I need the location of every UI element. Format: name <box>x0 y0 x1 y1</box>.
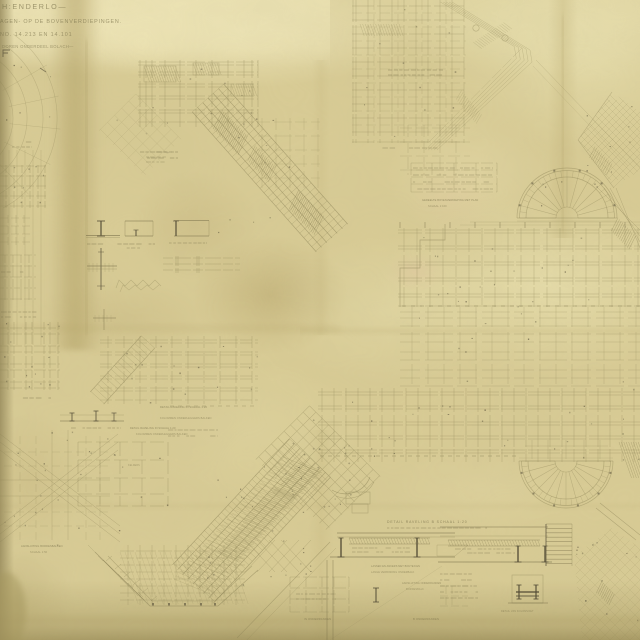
svg-text:SCHAAL 1:50: SCHAAL 1:50 <box>30 550 48 554</box>
svg-text:LASSEN EN ANKERS MET BOUTEN EN: LASSEN EN ANKERS MET BOUTEN EN <box>371 565 420 568</box>
svg-text:AANSLUITING ONDERRANDEN: AANSLUITING ONDERRANDEN <box>402 582 441 585</box>
svg-text:DETAIL RAVELING B SCHAAL 1:20: DETAIL RAVELING B SCHAAL 1:20 <box>387 520 468 524</box>
svg-text:KOLOMMEN ONDERLEGGERS BALKEN: KOLOMMEN ONDERLEGGERS BALKEN <box>160 416 212 420</box>
svg-text:BORDESBALK: BORDESBALK <box>406 588 424 591</box>
svg-text:AGEN- OP DE BOVENVERDIEPINGEN.: AGEN- OP DE BOVENVERDIEPINGEN. <box>0 19 122 25</box>
svg-text:LANGE VERBINDING ONDERBALK: LANGE VERBINDING ONDERBALK <box>371 571 415 574</box>
svg-text:AANSLUITING BORDESBALKEN: AANSLUITING BORDESBALKEN <box>21 544 63 548</box>
svg-text:B ONDERRANDEN: B ONDERRANDEN <box>413 617 439 621</box>
svg-text:GEDEELTE BOVENVERDIEPING MET P: GEDEELTE BOVENVERDIEPING MET PLAN <box>422 198 478 202</box>
svg-text:NO. 14.213 EN 14.101: NO. 14.213 EN 14.101 <box>0 32 73 38</box>
svg-text:IN ONDERRANDEN: IN ONDERRANDEN <box>304 617 331 621</box>
svg-text:DETAIL RAVELING IN SCHAAL 1:20: DETAIL RAVELING IN SCHAAL 1:20 <box>160 405 207 409</box>
svg-text:DETAIL VAN KOLOMVOET: DETAIL VAN KOLOMVOET <box>501 610 534 613</box>
svg-text:KOLOMMEN ONDERLEGGERS BALKEN: KOLOMMEN ONDERLEGGERS BALKEN <box>136 432 188 436</box>
svg-text:KELDERS: KELDERS <box>128 464 140 467</box>
svg-text:DETAIL RAVELING IN SCHAAL 1:20: DETAIL RAVELING IN SCHAAL 1:20 <box>130 426 176 430</box>
svg-text:SCHAAL 1:100: SCHAAL 1:100 <box>428 204 447 208</box>
svg-text:H:ENDERLO—: H:ENDERLO— <box>2 2 67 11</box>
svg-text:DOREN ONDERDEEL BOLACH—: DOREN ONDERDEEL BOLACH— <box>2 44 74 49</box>
